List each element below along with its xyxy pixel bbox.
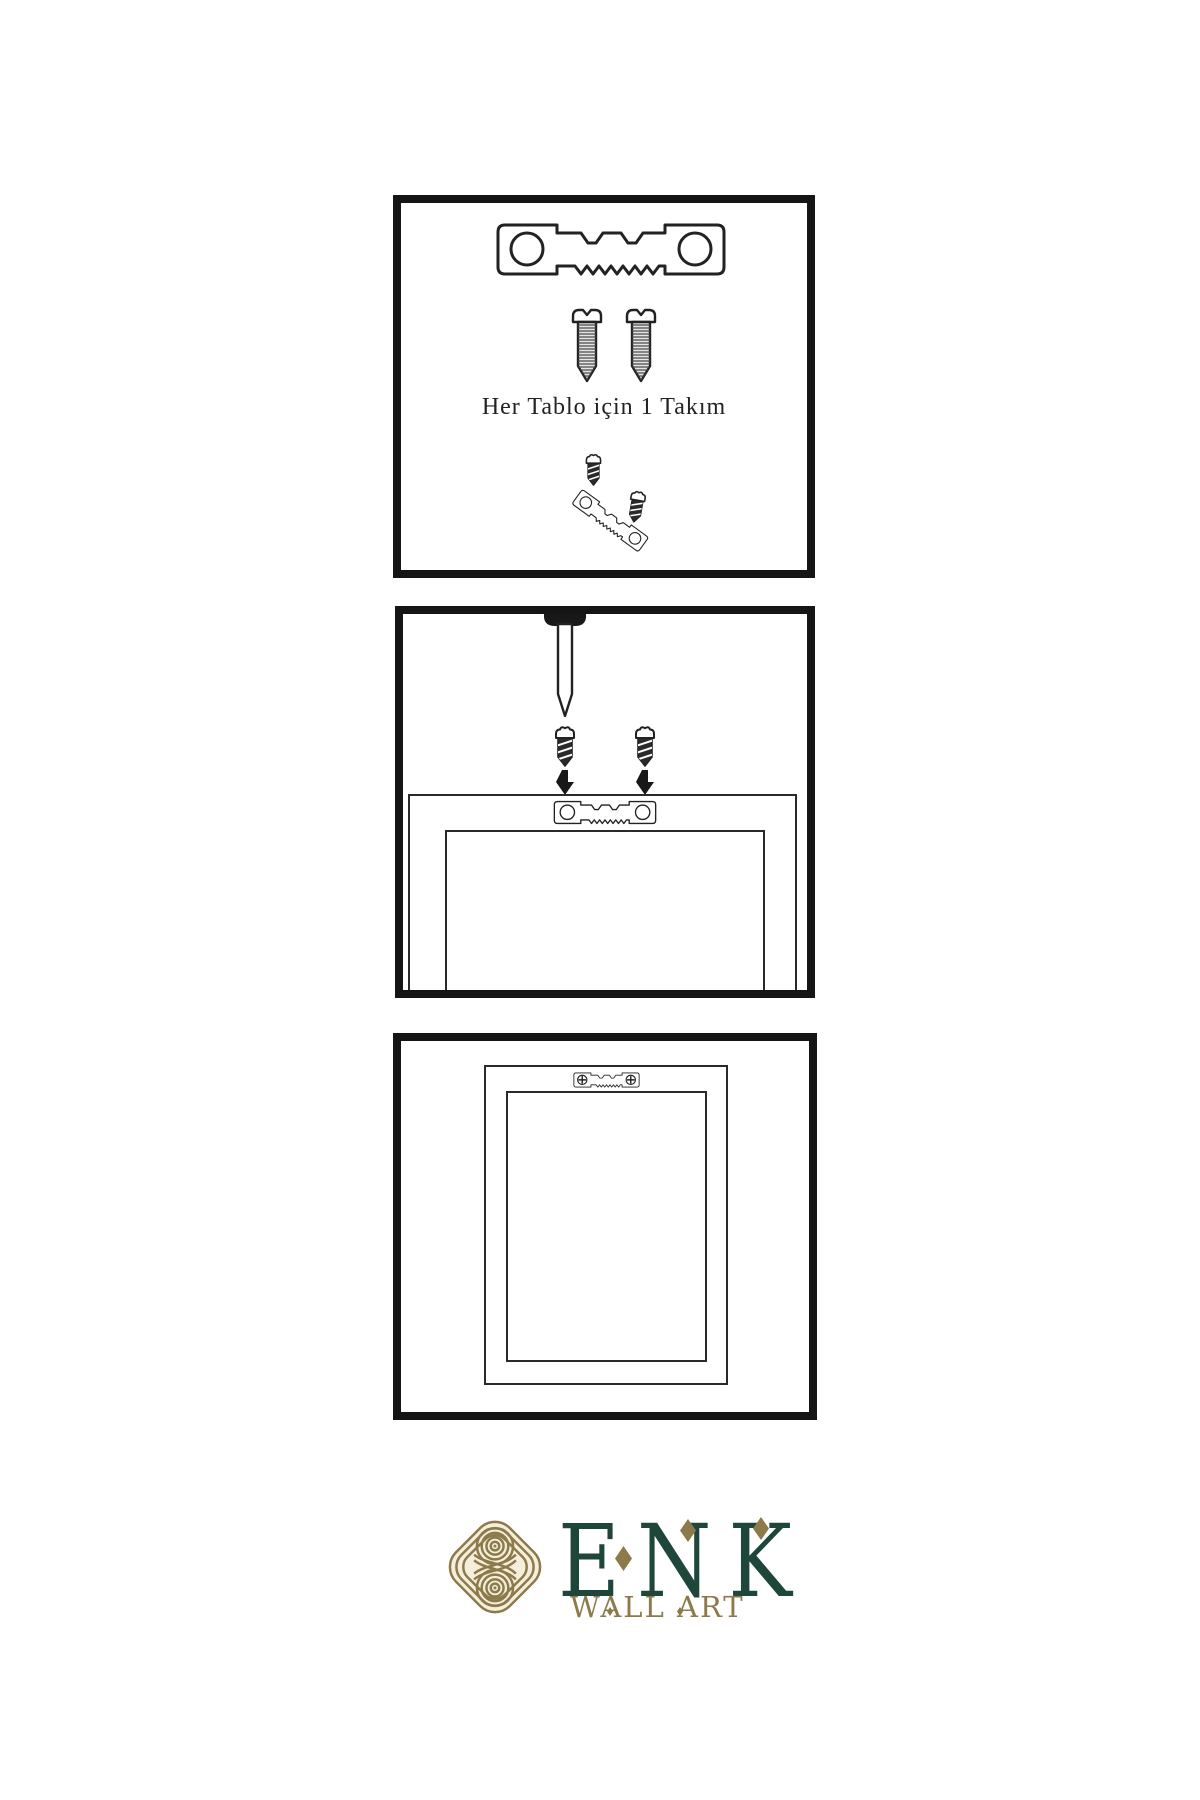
- screw-icon: [624, 489, 648, 525]
- screw-icon: [584, 453, 603, 486]
- step-2-mounting-panel: [395, 606, 815, 998]
- screw-icon: [633, 725, 657, 767]
- arrow-down-icon: [556, 770, 574, 796]
- screw-icon: [553, 725, 577, 767]
- screw-icon: [624, 306, 658, 384]
- step-3-hanging-panel: [393, 1033, 817, 1420]
- frame-inner-outline: [506, 1091, 707, 1362]
- nail-icon: [542, 614, 588, 718]
- interlaced-knot-icon: [438, 1503, 552, 1631]
- hanger-screw-assembly-icon: [577, 453, 669, 555]
- screw-icon: [570, 306, 604, 384]
- step-1-caption: Her Tablo için 1 Takım: [401, 394, 807, 421]
- sawtooth-hanger-icon: [495, 222, 727, 277]
- sawtooth-hanger-screwed-icon: [573, 1071, 640, 1089]
- step-1-hardware-panel: Her Tablo için 1 Takım: [393, 195, 815, 578]
- frame-back-inner-outline: [445, 830, 765, 990]
- arrow-down-icon: [636, 770, 654, 796]
- brand-subtitle: WALL ART: [570, 1593, 745, 1622]
- hanging-instruction-sheet: Her Tablo için 1 Takım ENK WALL ART: [0, 0, 1200, 1800]
- sawtooth-hanger-icon: [553, 800, 657, 825]
